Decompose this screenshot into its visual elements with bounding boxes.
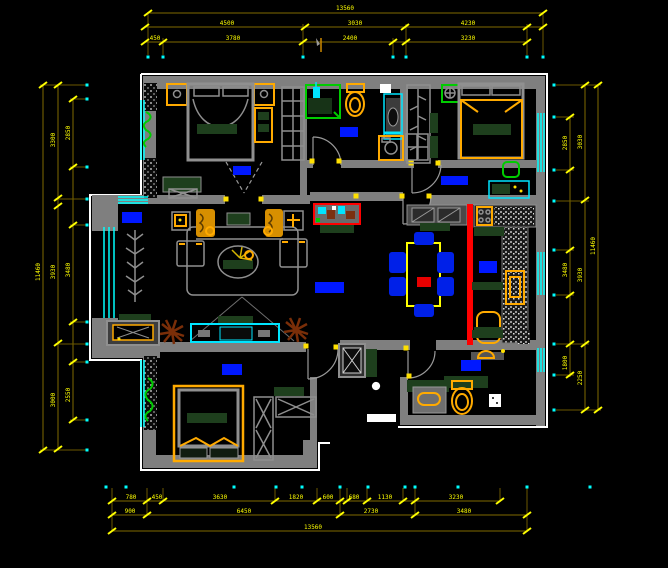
counter-top[interactable]: [472, 282, 503, 290]
dim-text[interactable]: 3930: [577, 267, 584, 282]
room-bedroom1: [144, 84, 304, 198]
room-label-bathroom1[interactable]: [340, 127, 358, 137]
dim-text[interactable]: 2730: [364, 508, 379, 515]
closet-shelf[interactable]: [430, 136, 438, 158]
room-label-bedroom2[interactable]: [441, 176, 468, 185]
dining-table[interactable]: [407, 243, 440, 306]
dim-text[interactable]: 3030: [348, 20, 363, 27]
dim-text[interactable]: 3000: [50, 392, 57, 407]
dim-text[interactable]: 4500: [220, 20, 235, 27]
bedside-cabinet[interactable]: [255, 108, 272, 142]
washbasin-2[interactable]: [413, 387, 446, 413]
dimension-chain-left[interactable]: 11460 3300 3930 3000 2850 3480 2550: [35, 82, 89, 453]
dim-text[interactable]: 3300: [50, 132, 57, 147]
floor-drain[interactable]: [489, 394, 501, 407]
counter-top[interactable]: [474, 227, 504, 236]
shoe-cabinet[interactable]: [339, 344, 365, 377]
dim-text[interactable]: 600: [323, 494, 334, 501]
hall-shelf[interactable]: [366, 349, 377, 377]
plant-right[interactable]: [284, 318, 308, 342]
tv-cabinet[interactable]: [191, 324, 279, 342]
wall-hatch: [144, 158, 157, 198]
door-bathroom2[interactable]: [404, 346, 436, 379]
room-dining: [389, 204, 473, 345]
plant-left[interactable]: [160, 320, 184, 344]
dim-text[interactable]: 450: [152, 494, 163, 501]
dim-text[interactable]: 900: [125, 508, 136, 515]
bay-window-living[interactable]: [104, 227, 114, 318]
wardrobe-bedroom3[interactable]: [254, 397, 273, 460]
dim-text[interactable]: 2250: [577, 370, 584, 385]
bed-double-3[interactable]: [174, 386, 243, 461]
bed-double-1[interactable]: [188, 84, 253, 160]
hall-closet: [407, 85, 438, 163]
dim-text[interactable]: 2850: [65, 125, 72, 140]
dim-text[interactable]: 6450: [237, 508, 252, 515]
coffee-table-plant[interactable]: [218, 246, 258, 278]
wardrobe-corridor[interactable]: [407, 85, 430, 163]
cad-floorplan-canvas: 13560 4500 3030 4230 450 3780 2400 3230 …: [0, 0, 668, 568]
dim-text[interactable]: 3930: [50, 264, 57, 279]
dimension-chain-top[interactable]: 13560 4500 3030 4230 450 3780 2400 3230: [141, 5, 547, 59]
dim-text[interactable]: 680: [349, 494, 360, 501]
dim-text[interactable]: 3230: [461, 35, 476, 42]
washing-machine[interactable]: [379, 133, 403, 160]
room-label-kitchen[interactable]: [479, 261, 497, 273]
highlighted-symbol[interactable]: [372, 382, 380, 390]
bench-mat[interactable]: [420, 223, 450, 231]
dim-text[interactable]: 1820: [289, 494, 304, 501]
sofa-set[interactable]: [172, 209, 303, 239]
dim-text[interactable]: 3480: [457, 508, 472, 515]
corner-cabinet[interactable]: [107, 321, 159, 345]
dim-text[interactable]: 450: [150, 35, 161, 42]
armchair-right[interactable]: [280, 239, 307, 267]
room-label-bathroom2[interactable]: [461, 360, 481, 371]
floorplan-drawing: 13560 4500 3030 4230 450 3780 2400 3230 …: [0, 0, 668, 568]
hallway: [315, 282, 396, 422]
wall-hatch: [144, 83, 157, 111]
room-kitchen: [472, 205, 536, 343]
kitchen-chair[interactable]: [474, 312, 501, 343]
dimension-chain-right[interactable]: 2850 3480 1800 3030 3930 2250 11460: [553, 82, 603, 413]
dim-text[interactable]: 3230: [449, 494, 464, 501]
dim-text[interactable]: 3630: [213, 494, 228, 501]
dim-text[interactable]: 3480: [65, 262, 72, 277]
dim-text[interactable]: 2400: [343, 35, 358, 42]
room-bedroom3: [145, 364, 316, 461]
dim-text[interactable]: 2550: [65, 387, 72, 402]
room-label-bedroom3[interactable]: [222, 364, 242, 375]
bed-double-2[interactable]: [459, 84, 523, 158]
room-bathroom1: [306, 82, 402, 139]
room-label-hallway[interactable]: [315, 282, 344, 293]
dim-text[interactable]: 4230: [461, 20, 476, 27]
dim-text[interactable]: 11460: [590, 237, 597, 255]
dim-text[interactable]: 2850: [562, 135, 569, 150]
bench-bedroom1[interactable]: [163, 177, 201, 198]
paper-holder[interactable]: [380, 84, 391, 93]
room-living: [107, 209, 308, 345]
dim-text[interactable]: 3480: [562, 262, 569, 277]
dim-text[interactable]: 11460: [35, 263, 42, 281]
stove-counter[interactable]: [474, 205, 536, 227]
closet-shelf[interactable]: [430, 113, 438, 133]
shelf-bedroom3[interactable]: [274, 387, 304, 396]
door-bedroom3[interactable]: [304, 344, 339, 380]
decor-console[interactable]: [314, 204, 360, 224]
coat-rack-plant[interactable]: [126, 230, 144, 302]
window-bench[interactable]: [407, 205, 467, 225]
window-bedroom1-left[interactable]: [141, 100, 144, 160]
dim-text[interactable]: 13560: [304, 524, 322, 531]
room-bedroom2: [441, 84, 529, 198]
armchair-left[interactable]: [177, 241, 204, 266]
door-bedroom2[interactable]: [409, 161, 442, 194]
dim-text[interactable]: 3030: [577, 134, 584, 149]
dim-text[interactable]: 3780: [226, 35, 241, 42]
dim-text[interactable]: 780: [126, 494, 137, 501]
room-label-bedroom1[interactable]: [233, 166, 251, 175]
dim-text[interactable]: 13560: [336, 5, 354, 12]
entry-mat[interactable]: [320, 225, 354, 233]
entry-cabinet[interactable]: [406, 134, 428, 160]
dim-text[interactable]: 1800: [562, 355, 569, 370]
tv-shelf[interactable]: [218, 316, 253, 324]
room-label-living[interactable]: [122, 212, 142, 223]
dim-text[interactable]: 1130: [378, 494, 393, 501]
window-bedroom3-left[interactable]: [141, 360, 144, 427]
dining-chairs[interactable]: [389, 232, 454, 317]
dimension-chain-bottom[interactable]: 780 450 3630 1820 600 680 1130 3230 900 …: [105, 486, 592, 535]
highlighted-text-block[interactable]: [367, 414, 396, 422]
door-bathroom1[interactable]: [310, 137, 342, 165]
highlighted-wall-red[interactable]: [467, 204, 473, 345]
